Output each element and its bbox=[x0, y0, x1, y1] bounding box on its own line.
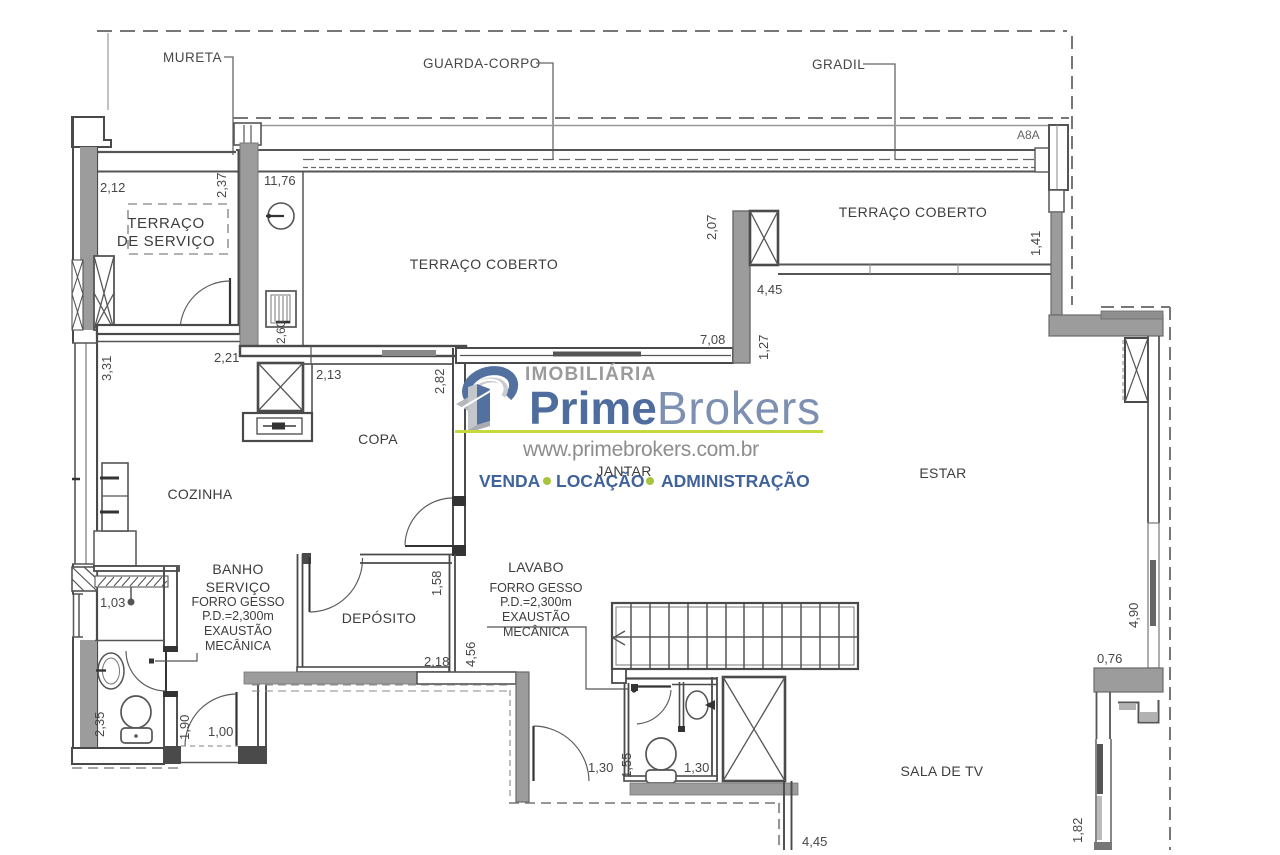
svg-text:GRADIL: GRADIL bbox=[812, 57, 865, 72]
svg-text:BANHO: BANHO bbox=[212, 561, 263, 577]
svg-text:MECÂNICA: MECÂNICA bbox=[503, 624, 570, 639]
svg-text:COZINHA: COZINHA bbox=[167, 486, 232, 502]
svg-text:PrimeBrokers: PrimeBrokers bbox=[529, 382, 821, 434]
svg-text:www.primebrokers.com.br: www.primebrokers.com.br bbox=[522, 438, 759, 461]
svg-text:FORRO GESSO: FORRO GESSO bbox=[489, 581, 582, 595]
svg-text:1,03: 1,03 bbox=[100, 595, 125, 610]
svg-text:1,30: 1,30 bbox=[684, 760, 709, 775]
svg-text:2,13: 2,13 bbox=[316, 367, 341, 382]
svg-text:LAVABO: LAVABO bbox=[508, 559, 564, 575]
svg-text:COPA: COPA bbox=[358, 431, 398, 447]
svg-text:ESTAR: ESTAR bbox=[919, 465, 966, 481]
svg-text:A8A: A8A bbox=[1017, 128, 1040, 142]
svg-text:EXAUSTÃO: EXAUSTÃO bbox=[204, 624, 272, 638]
svg-text:11,76: 11,76 bbox=[264, 173, 296, 188]
svg-text:SERVIÇO: SERVIÇO bbox=[206, 579, 271, 595]
svg-text:FORRO GESSO: FORRO GESSO bbox=[191, 595, 284, 609]
svg-text:2,12: 2,12 bbox=[100, 180, 125, 195]
svg-text:VENDA: VENDA bbox=[479, 471, 541, 491]
svg-text:2,07: 2,07 bbox=[704, 215, 719, 240]
svg-text:2,60: 2,60 bbox=[274, 320, 288, 344]
svg-text:MECÂNICA: MECÂNICA bbox=[205, 638, 272, 653]
svg-text:1,90: 1,90 bbox=[177, 715, 192, 740]
svg-text:0,76: 0,76 bbox=[1097, 651, 1122, 666]
svg-text:1,41: 1,41 bbox=[1028, 231, 1043, 256]
svg-text:4,56: 4,56 bbox=[463, 642, 478, 667]
svg-text:4,90: 4,90 bbox=[1126, 603, 1141, 628]
svg-text:SALA DE TV: SALA DE TV bbox=[901, 763, 984, 779]
svg-text:TERRAÇO: TERRAÇO bbox=[127, 215, 205, 232]
svg-text:2,82: 2,82 bbox=[432, 369, 447, 394]
svg-text:MURETA: MURETA bbox=[163, 50, 222, 65]
svg-text:DE SERVIÇO: DE SERVIÇO bbox=[117, 233, 215, 250]
svg-text:TERRAÇO COBERTO: TERRAÇO COBERTO bbox=[410, 256, 559, 272]
svg-text:1,55: 1,55 bbox=[619, 753, 634, 778]
svg-text:1,82: 1,82 bbox=[1070, 818, 1085, 843]
svg-text:2,35: 2,35 bbox=[92, 712, 107, 737]
svg-text:3,31: 3,31 bbox=[99, 356, 114, 381]
svg-text:TERRAÇO COBERTO: TERRAÇO COBERTO bbox=[839, 204, 988, 220]
svg-text:4,45: 4,45 bbox=[802, 834, 827, 849]
svg-text:2,21: 2,21 bbox=[214, 350, 239, 365]
svg-text:P.D.=2,300m: P.D.=2,300m bbox=[202, 609, 274, 623]
svg-text:2,37: 2,37 bbox=[214, 173, 229, 198]
svg-text:2,18: 2,18 bbox=[424, 654, 449, 669]
svg-text:1,27: 1,27 bbox=[756, 335, 771, 360]
svg-text:GUARDA-CORPO: GUARDA-CORPO bbox=[423, 56, 541, 71]
svg-text:1,30: 1,30 bbox=[588, 760, 613, 775]
svg-text:7,08: 7,08 bbox=[700, 332, 725, 347]
svg-text:P.D.=2,300m: P.D.=2,300m bbox=[500, 595, 572, 609]
svg-text:JANTAR: JANTAR bbox=[596, 463, 651, 479]
svg-text:1,58: 1,58 bbox=[429, 571, 444, 596]
svg-text:4,45: 4,45 bbox=[757, 282, 782, 297]
svg-text:1,00: 1,00 bbox=[208, 724, 233, 739]
svg-text:ADMINISTRAÇÃO: ADMINISTRAÇÃO bbox=[661, 470, 810, 491]
svg-text:DEPÓSITO: DEPÓSITO bbox=[342, 610, 417, 626]
svg-text:EXAUSTÃO: EXAUSTÃO bbox=[502, 610, 570, 624]
